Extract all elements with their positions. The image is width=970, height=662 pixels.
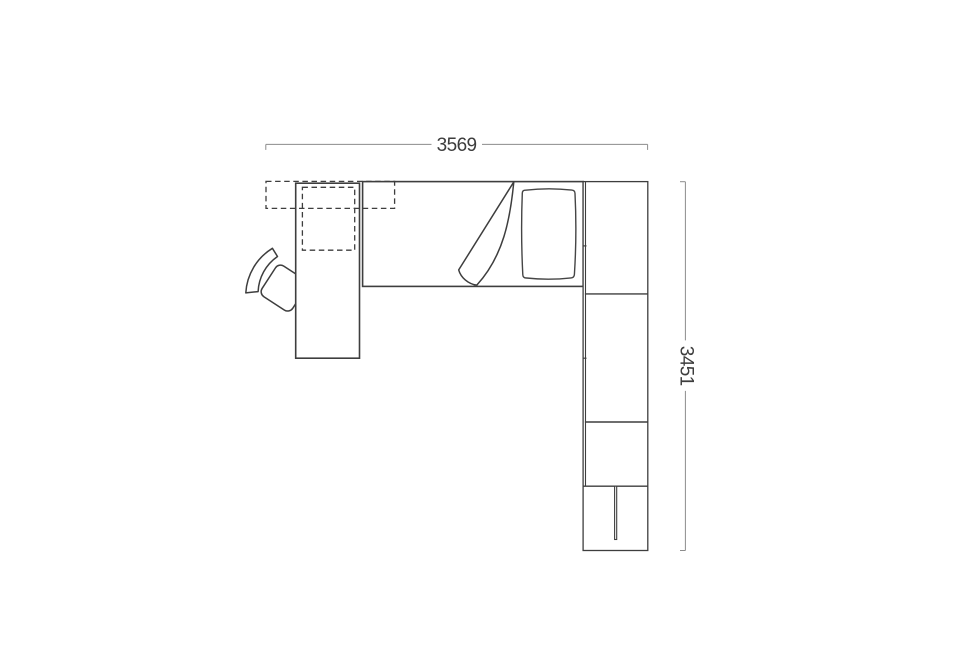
svg-text:3451: 3451 [676,346,697,386]
svg-text:3569: 3569 [437,135,477,156]
